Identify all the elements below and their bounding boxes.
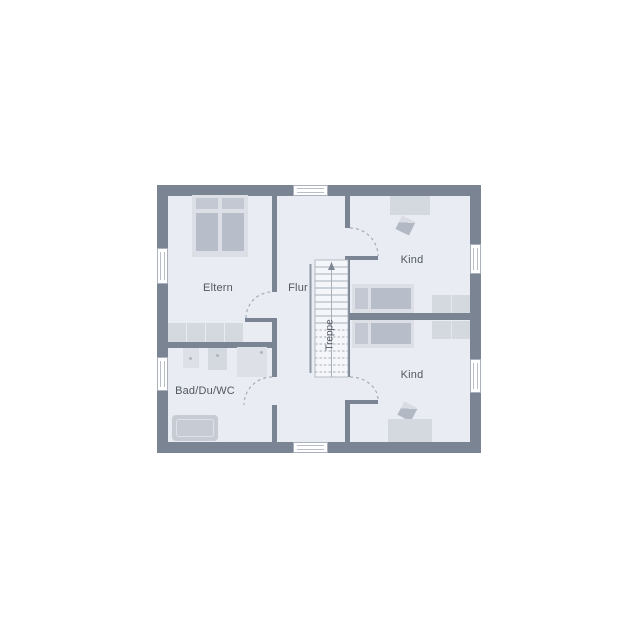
room-label-kind-top: Kind <box>401 254 424 266</box>
pillow <box>355 323 368 344</box>
wardrobe-section <box>225 323 243 342</box>
double-bed <box>192 195 248 257</box>
window-eltern-west <box>157 248 168 284</box>
room-label-eltern: Eltern <box>203 282 233 294</box>
washbasin <box>183 348 199 368</box>
dresser <box>390 196 430 215</box>
wall-kind-top-west <box>345 196 350 228</box>
window-bad-west <box>157 357 168 391</box>
window-flur-south <box>293 442 328 453</box>
wardrobe-section <box>168 323 186 342</box>
wardrobe <box>168 323 243 342</box>
pillow <box>355 288 368 309</box>
floor-plan: Eltern Flur Kind Kind Bad/Du/WC Treppe <box>157 185 481 453</box>
room-label-bad: Bad/Du/WC <box>175 385 235 397</box>
window-flur-north <box>293 185 328 196</box>
single-bed <box>352 284 414 313</box>
mattress <box>222 213 244 251</box>
room-label-flur: Flur <box>288 282 308 294</box>
dresser <box>388 419 432 442</box>
window-kind-top-east <box>470 244 481 274</box>
wall-kind-divider <box>350 313 470 320</box>
wall-eltern-east <box>272 196 277 292</box>
shower <box>237 347 267 377</box>
desk <box>432 321 470 339</box>
pillow <box>222 198 244 209</box>
bathtub <box>172 415 218 441</box>
floorplan-image: Eltern Flur Kind Kind Bad/Du/WC Treppe <box>0 0 636 636</box>
pillow <box>196 198 218 209</box>
mattress <box>196 213 218 251</box>
desk <box>432 295 470 313</box>
mattress <box>371 323 411 344</box>
wall-kind-bottom-west <box>345 404 350 442</box>
room-label-kind-bottom: Kind <box>401 369 424 381</box>
washbasin <box>208 348 227 370</box>
window-kind-bottom-east <box>470 359 481 393</box>
room-label-treppe: Treppe <box>325 319 336 350</box>
mattress <box>371 288 411 309</box>
wardrobe-section <box>206 323 224 342</box>
wardrobe-section <box>187 323 205 342</box>
single-bed <box>352 320 414 348</box>
wall-bad-east-lower <box>272 405 277 442</box>
